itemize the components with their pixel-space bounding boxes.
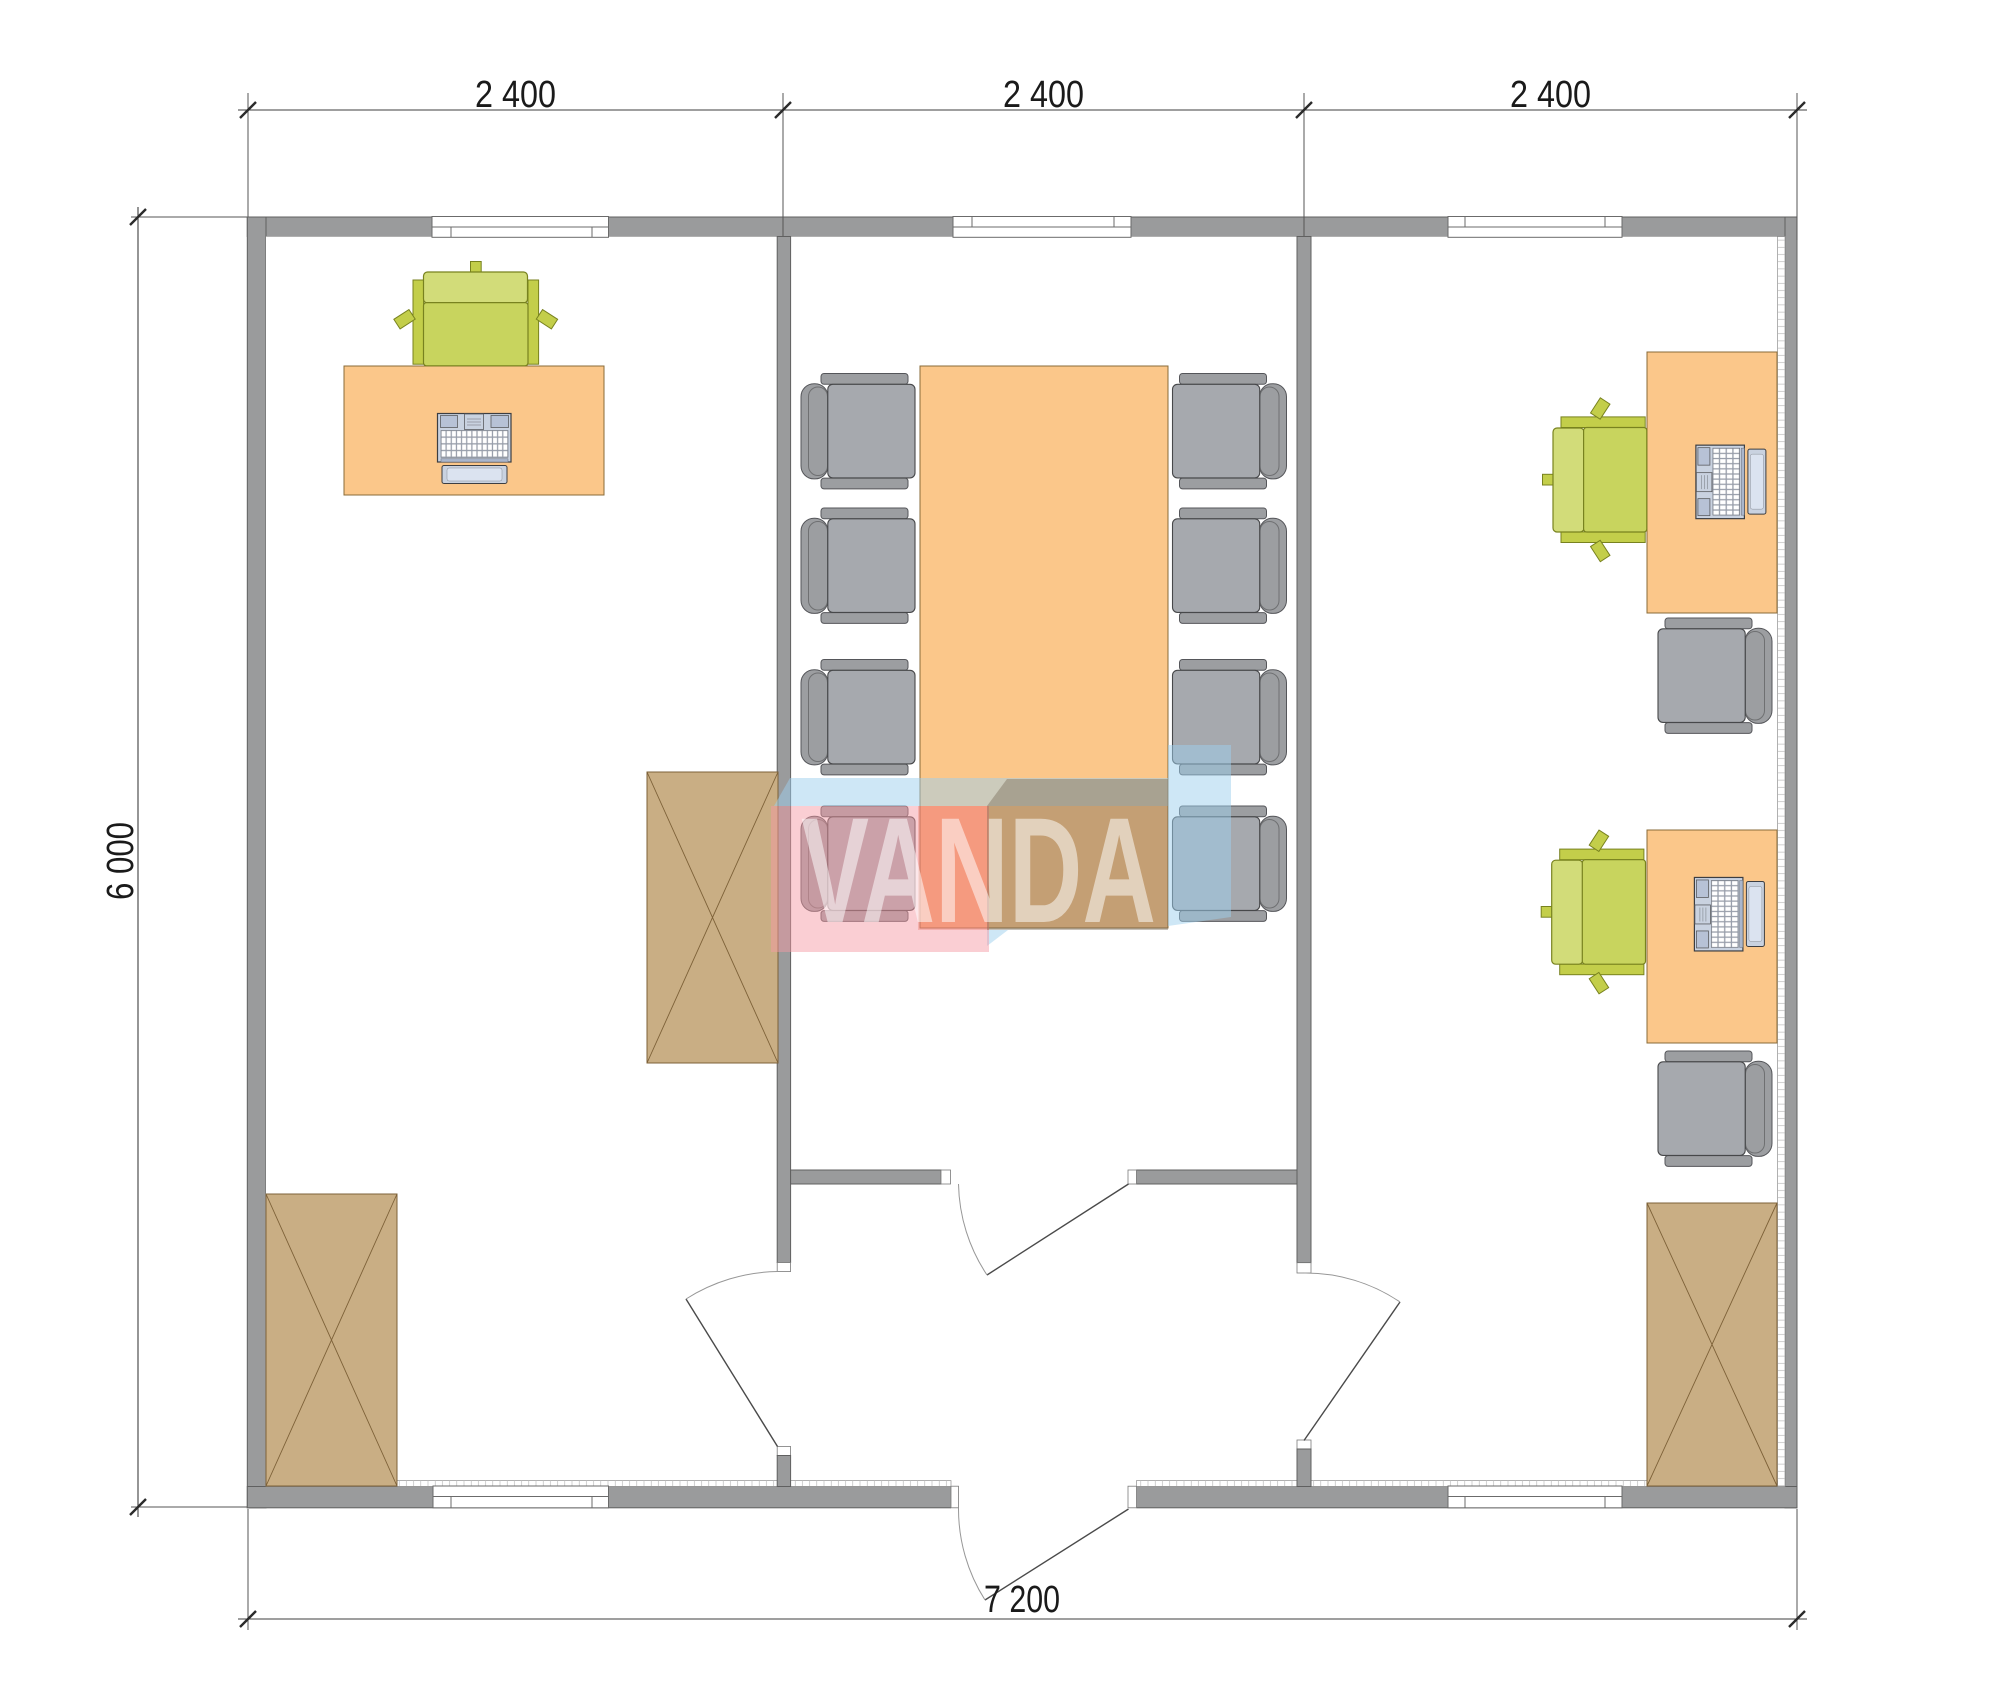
svg-text:2 400: 2 400 bbox=[475, 74, 556, 116]
svg-text:2 400: 2 400 bbox=[1510, 74, 1591, 116]
svg-text:2 400: 2 400 bbox=[1003, 74, 1084, 116]
svg-text:7 200: 7 200 bbox=[984, 1579, 1060, 1621]
svg-text:6 000: 6 000 bbox=[100, 822, 142, 900]
svg-text:VANDA: VANDA bbox=[801, 786, 1156, 954]
